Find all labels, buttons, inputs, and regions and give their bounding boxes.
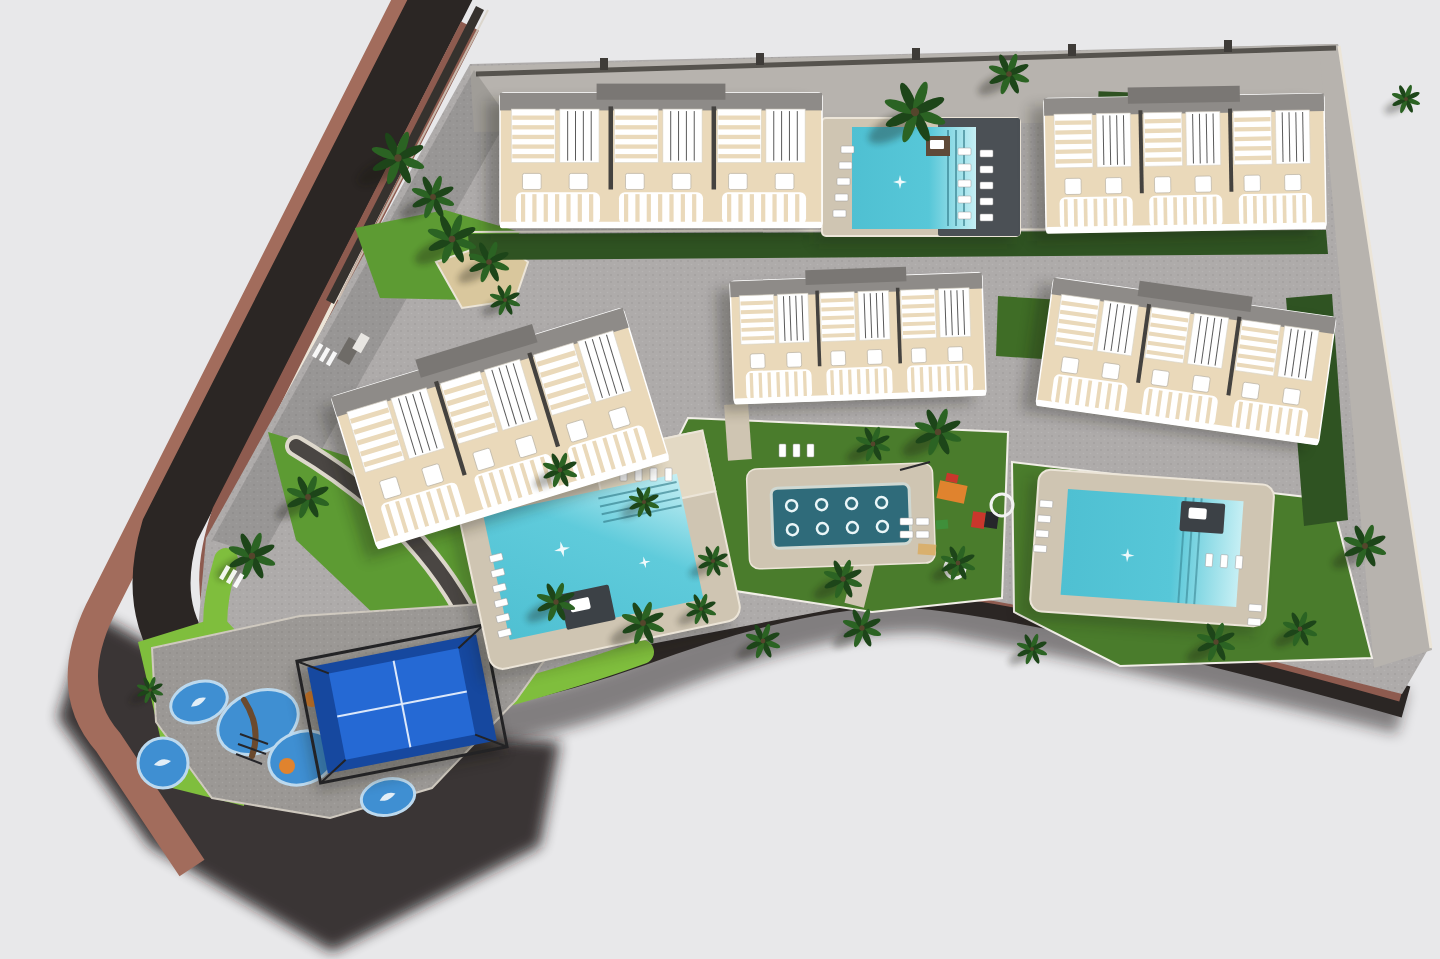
play-box-tan (918, 543, 937, 555)
pergola-bed (930, 140, 944, 149)
site-plan-render (0, 0, 1440, 959)
apartment-block-northwest (486, 84, 822, 235)
apartment-block-northeast (1030, 84, 1327, 240)
loungers-central (779, 444, 814, 457)
play-box-green (936, 519, 949, 529)
wall-post (600, 58, 608, 70)
apartment-block-center (716, 264, 987, 412)
wall-post (756, 53, 764, 65)
pergola-bed (1188, 507, 1207, 519)
garden-path (724, 403, 752, 461)
wall-post (1224, 40, 1232, 52)
splash-dot-orange (279, 758, 295, 774)
east-pool (1019, 468, 1275, 637)
wall-post (912, 48, 920, 60)
spa-pool (746, 463, 935, 569)
screenshot-root: Aerial 3D render — residential complex s… (0, 0, 1440, 959)
play-panel (971, 511, 986, 529)
wall-post (1068, 44, 1076, 56)
splash-pad (138, 738, 188, 788)
loungers-east-pool (1205, 553, 1243, 569)
pool-water (852, 127, 976, 229)
spa-water (771, 484, 911, 549)
